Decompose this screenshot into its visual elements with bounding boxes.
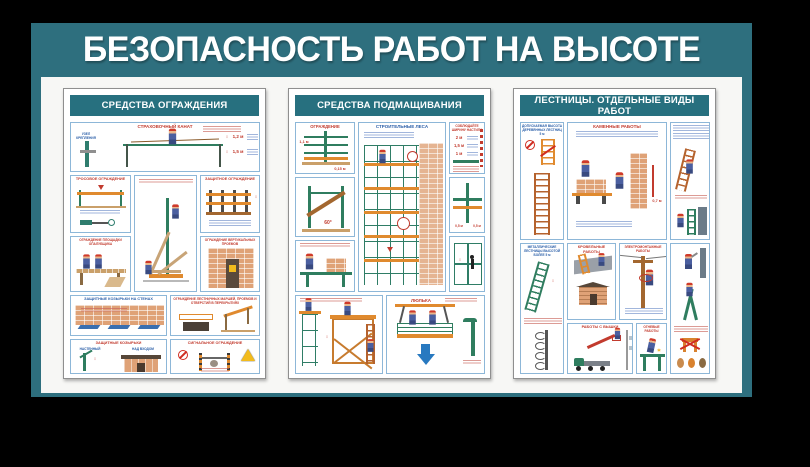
fine-print <box>247 149 258 155</box>
worker-figure <box>686 283 692 297</box>
panel-frame-clearance: ↕ <box>449 236 485 292</box>
worker-figure <box>83 254 90 268</box>
dim-label: 0,15 м <box>330 167 350 172</box>
dim-label: 1 м <box>452 151 466 156</box>
deck-graphic <box>364 259 419 262</box>
rail-graphic <box>304 136 348 138</box>
fine-print <box>453 166 479 172</box>
post-graphic <box>247 308 249 324</box>
fine-print <box>80 210 120 214</box>
panel-wooden-ladders: ДОПУСКАЕМАЯ ВЫСОТА ДЕРЕВЯННЫХ ЛЕСТНИЦ 5 … <box>520 122 564 240</box>
worker-figure <box>306 298 312 311</box>
ground-line <box>143 280 189 282</box>
fine-print <box>467 152 478 156</box>
warning-plate-graphic <box>229 265 236 272</box>
wheel-graphic <box>588 366 593 371</box>
panel-safety-rope: СТРАХОВОЧНЫЙ КАНАТ УЗЕЛ КРЕПЛЕНИЯ ↕ 1,2 … <box>70 122 260 172</box>
suspension-rope-graphic <box>443 306 449 323</box>
crossarm-graphic <box>633 260 653 263</box>
down-arrow-graphic <box>98 185 104 190</box>
panel-construction-scaffold: СТРОИТЕЛЬНЫЕ ЛЕСА <box>358 122 446 292</box>
worker-figure <box>599 253 605 266</box>
panel-title: РАБОТЫ С ВЫШКИ <box>569 325 631 330</box>
wooden-ladder-graphic <box>534 173 550 235</box>
panel-title: ЗАЩИТНОЕ ОГРАЖДЕНИЕ <box>202 177 258 182</box>
panel-protective-visors: ЗАЩИТНЫЕ КОЗЫРЬКИ НАСТЕННЫЙ НАД ВХОДОМ ↕ <box>70 339 167 374</box>
worker-figure <box>169 129 176 145</box>
worker-figure <box>172 204 179 218</box>
dim-label: 1,5 м <box>230 149 246 155</box>
davit-mast-graphic <box>471 322 475 356</box>
post-graphic <box>219 144 221 167</box>
brick-column-graphic <box>630 153 647 209</box>
panel-title: ЗАЩИТНЫЕ КОЗЫРЬКИ <box>72 341 165 346</box>
post-graphic <box>225 314 227 330</box>
fine-print <box>201 368 229 372</box>
column-graphic <box>643 357 646 371</box>
panel-slab-graphic <box>104 277 125 287</box>
poster-scaffolding-content: ОГРАЖДЕНИЕ 1,1 м 0,15 м СТРОИТЕЛЬНЫЕ ЛЕС… <box>295 122 485 374</box>
stand-title: БЕЗОПАСНОСТЬ РАБОТ НА ВЫСОТЕ <box>42 23 741 77</box>
ladder-on-ground-graphic <box>147 270 181 273</box>
worker-figure <box>686 159 693 173</box>
photo-background: БЕЗОПАСНОСТЬ РАБОТ НА ВЫСОТЕ СРЕДСТВА ОГ… <box>0 0 810 467</box>
fine-print <box>625 308 663 316</box>
panel-aerial-platform: РАБОТЫ С ВЫШКИ <box>567 323 633 374</box>
panel-metal-ladders: МЕТАЛЛИЧЕСКИЕ ЛЕСТНИЦЫ ВЫСОТОЙ БОЛЕЕ 5 м… <box>520 243 564 374</box>
panel-title: ОГРАЖДЕНИЕ ВЕРТИКАЛЬНЫХ ПРОЕМОВ <box>202 238 258 246</box>
post-graphic <box>466 183 469 223</box>
fine-print <box>576 131 658 139</box>
dim-label: 1,1 м <box>297 140 311 145</box>
fine-print <box>675 195 707 200</box>
v-arrow-icon: ↕ <box>323 334 331 340</box>
angle-label: 60° <box>320 220 336 226</box>
fine-print <box>209 220 251 226</box>
visor-type-label: НАД ВХОДОМ <box>127 347 159 351</box>
detail-callout-circle <box>407 151 418 162</box>
panel-title: ОГНЕВЫЕ РАБОТЫ <box>638 325 665 333</box>
ground-graphic <box>302 229 350 232</box>
fine-print <box>673 125 709 139</box>
panel-bricks-on-deck <box>295 240 355 292</box>
cage-hoop-graphic <box>535 342 546 350</box>
panel-guardrail: ОГРАЖДЕНИЕ 1,1 м 0,15 м <box>295 122 355 174</box>
canopy-graphic <box>78 325 101 329</box>
wheel-graphic <box>576 366 581 371</box>
deck-graphic <box>364 163 419 166</box>
tower-graphic <box>302 314 318 366</box>
panel-masonry-work: КАМЕННЫЕ РАБОТЫ 0,7 м <box>567 122 667 240</box>
fine-print <box>467 136 478 140</box>
doorway-graphic <box>137 363 145 372</box>
poster-ladders: ЛЕСТНИЦЫ. ОТДЕЛЬНЫЕ ВИДЫ РАБОТ ДОПУСКАЕМ… <box>513 88 716 379</box>
fine-print <box>445 298 477 303</box>
fine-print <box>247 134 258 140</box>
prohibition-sign-icon <box>525 140 535 150</box>
deck-graphic <box>364 187 419 190</box>
dim-label: 2 м <box>452 135 466 140</box>
fine-print <box>467 144 478 148</box>
worker-figure <box>582 160 590 177</box>
worker-figure <box>429 310 436 324</box>
signal-rope-graphic <box>202 357 227 359</box>
poster-scaffolding: СРЕДСТВА ПОДМАЩИВАНИЯ ОГРАЖДЕНИЕ 1,1 м 0… <box>288 88 491 379</box>
worker-figure <box>677 214 683 228</box>
panel-vertical-openings: ОГРАЖДЕНИЕ ВЕРТИКАЛЬНЫХ ПРОЕМОВ <box>200 236 260 292</box>
wall-edge-graphic <box>698 207 707 235</box>
dim-label: 0,5 м <box>469 224 485 228</box>
support-graphic <box>602 196 606 204</box>
panel-title: КРОВЕЛЬНЫЕ РАБОТЫ <box>569 245 614 254</box>
warning-triangle-icon <box>241 349 255 361</box>
deck-graphic <box>221 330 255 332</box>
node-label: УЗЕЛ КРЕПЛЕНИЯ <box>72 132 100 140</box>
v-arrow-icon: ↕ <box>252 194 260 200</box>
window-graphic <box>629 336 633 340</box>
building-edge-graphic <box>626 330 628 370</box>
cage-hoop-graphic <box>535 352 546 360</box>
worker-figure <box>306 254 313 270</box>
deck-graphic <box>330 315 376 319</box>
support-graphic <box>576 196 580 204</box>
panel-stepladder-rules <box>670 243 710 374</box>
panel-title: ТРОСОВОЕ ОГРАЖДЕНИЕ <box>72 177 129 182</box>
panel-trestles: ↕ <box>295 295 383 374</box>
worker-figure <box>344 302 350 316</box>
low-wall-graphic <box>576 179 606 193</box>
hammer-graphic <box>691 252 698 258</box>
brace-plank-graphic <box>306 191 345 218</box>
fine-print <box>463 360 481 365</box>
dim-label: 0,5 м <box>451 224 467 228</box>
blue-arrow-stem <box>421 344 430 354</box>
down-arrow-graphic <box>387 247 393 252</box>
support-graphic <box>80 273 83 285</box>
hatch-railing-graphic <box>179 314 213 320</box>
support-graphic <box>342 275 345 287</box>
tie-graphic <box>453 198 482 201</box>
window-graphic <box>629 346 633 350</box>
panel-title: ЛЮЛЬКА <box>401 298 441 304</box>
deck-graphic <box>76 206 126 208</box>
panel-title: ОГРАЖДЕНИЕ <box>297 124 353 129</box>
poster-fencing: СРЕДСТВА ОГРАЖДЕНИЯ СТРАХОВОЧНЫЙ КАНАТ У… <box>63 88 266 379</box>
panel-title: ЗАЩИТНЫЕ КОЗЫРЬКИ НА СТЕНАХ <box>72 297 165 302</box>
dim-label: 0,7 м <box>648 199 666 204</box>
panel-title: ОГРАЖДЕНИЕ ЛЕСТНИЧНЫХ МАРШЕЙ, ПРОЕМОВ И … <box>172 297 258 305</box>
panel-anchor-tie: 0,5 м 0,5 м <box>449 177 485 233</box>
vessel-icon <box>688 358 695 368</box>
fine-print <box>364 132 414 140</box>
dim-line-graphic <box>652 165 654 197</box>
column-graphic <box>658 357 661 371</box>
rail-graphic <box>304 152 348 154</box>
panel-formwork-platform: ОГРАЖДЕНИЕ ПЛОЩАДКИ ОПАЛУБЩИКА <box>70 236 131 292</box>
deck-graphic <box>364 235 419 238</box>
fine-print <box>203 126 241 132</box>
toe-board-graphic <box>206 212 251 215</box>
truck-bed-graphic <box>584 361 610 366</box>
panel-deck-width: СОБЛЮДАЙТЕ ШИРИНУ НАСТИЛА 2 м 1,5 м 1 м <box>449 122 485 174</box>
doorway-graphic <box>590 294 597 305</box>
panel-title: МЕТАЛЛИЧЕСКИЕ ЛЕСТНИЦЫ ВЫСОТОЙ БОЛЕЕ 5 м <box>522 245 562 257</box>
v-arrow-icon: ↕ <box>549 278 557 284</box>
panel-protective-fence: ЗАЩИТНОЕ ОГРАЖДЕНИЕ ↕ <box>200 175 260 233</box>
panel-title: КАМЕННЫЕ РАБОТЫ <box>569 124 665 130</box>
worker-figure <box>616 172 624 189</box>
panel-title: СИГНАЛЬНОЕ ОГРАЖДЕНИЕ <box>172 341 258 346</box>
frame-bar-graphic <box>454 263 482 265</box>
person-silhouette-body <box>471 259 474 269</box>
fine-print-title <box>139 179 193 184</box>
dim-label: 1,5 м <box>452 143 466 148</box>
floor-hatch-graphic <box>183 322 209 331</box>
fine-print-title <box>300 243 350 248</box>
toe-board-graphic <box>304 157 348 160</box>
fine-print <box>576 221 632 229</box>
panel-hot-work: ОГНЕВЫЕ РАБОТЫ ✶ <box>636 323 667 374</box>
panel-title: СОБЛЮДАЙТЕ ШИРИНУ НАСТИЛА <box>451 124 483 132</box>
brick-stack-graphic <box>326 258 346 272</box>
v-arrow-icon: ↕ <box>456 257 464 263</box>
safety-belt-graphic <box>639 274 653 282</box>
poster-fencing-title: СРЕДСТВА ОГРАЖДЕНИЯ <box>70 95 259 116</box>
utility-pole-graphic <box>641 256 645 308</box>
panel-title: ОГРАЖДЕНИЕ ПЛОЩАДКИ ОПАЛУБЩИКА <box>72 238 129 246</box>
vessel-icon <box>699 358 706 368</box>
v-arrow-icon: ↕ <box>91 356 99 362</box>
turnbuckle-graphic <box>80 220 92 225</box>
wall-edge-graphic <box>700 248 706 278</box>
detail-callout-circle <box>397 217 410 230</box>
wall-opening-graphic <box>226 259 239 288</box>
wire-graphic <box>620 255 642 258</box>
suspension-rope-graphic <box>399 306 405 323</box>
canopy-graphic <box>138 325 161 329</box>
panel-diagonal-brace: 60° <box>295 177 355 237</box>
building-wall-graphic <box>419 143 443 285</box>
cage-hoop-graphic <box>535 362 546 370</box>
cable-graphic <box>77 192 124 195</box>
base-graphic <box>149 274 183 278</box>
panel-wall-canopies: ЗАЩИТНЫЕ КОЗЫРЬКИ НА СТЕНАХ <box>70 295 167 336</box>
cage-hoop-graphic <box>535 332 546 340</box>
deck-graphic <box>364 211 419 214</box>
prohibition-sign-icon <box>178 350 188 360</box>
cable-graphic <box>92 222 108 224</box>
poster-fencing-content: СТРАХОВОЧНЫЙ КАНАТ УЗЕЛ КРЕПЛЕНИЯ ↕ 1,2 … <box>70 122 260 374</box>
metal-ladder-graphic <box>524 261 549 312</box>
panel-roofing-work: КРОВЕЛЬНЫЕ РАБОТЫ <box>567 243 616 320</box>
panel-ladder-carrying <box>670 122 710 240</box>
worker-figure <box>95 254 102 268</box>
fine-print <box>81 308 127 313</box>
anchor-post-graphic <box>85 141 89 167</box>
wheel-graphic <box>600 366 605 371</box>
poster-scaffolding-title: СРЕДСТВА ПОДМАЩИВАНИЯ <box>295 95 484 116</box>
tower-deck-graphic <box>299 311 321 314</box>
panel-signal-fence: СИГНАЛЬНОЕ ОГРАЖДЕНИЕ <box>170 339 260 374</box>
blue-arrow-head <box>417 354 435 365</box>
deck-graphic <box>302 162 350 165</box>
worker-figure <box>145 261 151 275</box>
fine-print <box>674 326 708 332</box>
clamp-graphic <box>80 150 96 153</box>
panel-title: СТРОИТЕЛЬНЫЕ ЛЕСА <box>360 124 444 130</box>
dim-label: 1,2 м <box>230 134 246 140</box>
boulder-graphic <box>210 360 218 367</box>
support-graphic <box>306 275 309 287</box>
safety-stand: БЕЗОПАСНОСТЬ РАБОТ НА ВЫСОТЕ СРЕДСТВА ОГ… <box>31 23 752 397</box>
panel-ladder-raising <box>134 175 197 292</box>
worker-figure <box>615 328 620 339</box>
scaffold-grid-graphic <box>364 145 419 285</box>
deck-graphic <box>453 206 482 209</box>
rail-graphic <box>206 202 251 205</box>
panel-electrical-work: ЭЛЕКТРОМОНТАЖНЫЕ РАБОТЫ <box>619 243 667 320</box>
panel-stair-openings: ОГРАЖДЕНИЕ ЛЕСТНИЧНЫХ МАРШЕЙ, ПРОЕМОВ И … <box>170 295 260 336</box>
wire-graphic <box>646 256 667 259</box>
wall-ladder-graphic <box>687 209 696 235</box>
post-graphic <box>126 144 128 167</box>
cradle-floor-graphic <box>397 334 453 338</box>
canopy-graphic <box>108 325 131 329</box>
ring-graphic <box>108 219 115 226</box>
ruler-graphic <box>480 129 483 167</box>
poster-board: СРЕДСТВА ОГРАЖДЕНИЯ СТРАХОВОЧНЫЙ КАНАТ У… <box>41 77 742 393</box>
panel-title: ДОПУСКАЕМАЯ ВЫСОТА ДЕРЕВЯННЫХ ЛЕСТНИЦ 5 … <box>522 124 562 136</box>
truck-cab-graphic <box>574 358 584 366</box>
davit-arm-graphic <box>463 318 477 322</box>
deck-graphic <box>453 160 479 163</box>
panel-cradle: ЛЮЛЬКА <box>386 295 485 374</box>
worker-figure <box>368 339 374 352</box>
panel-cable-fence: ТРОСОВОЕ ОГРАЖДЕНИЕ <box>70 175 131 233</box>
poster-ladders-content: ДОПУСКАЕМАЯ ВЫСОТА ДЕРЕВЯННЫХ ЛЕСТНИЦ 5 … <box>520 122 710 374</box>
worker-figure <box>379 150 385 164</box>
worker-figure <box>409 310 416 324</box>
panel-title: ЭЛЕКТРОМОНТАЖНЫЕ РАБОТЫ <box>621 245 665 253</box>
poster-ladders-title: ЛЕСТНИЦЫ. ОТДЕЛЬНЫЕ ВИДЫ РАБОТ <box>520 95 709 116</box>
fine-print <box>524 318 562 324</box>
rail-graphic <box>206 193 251 196</box>
vessel-icon <box>677 358 684 368</box>
